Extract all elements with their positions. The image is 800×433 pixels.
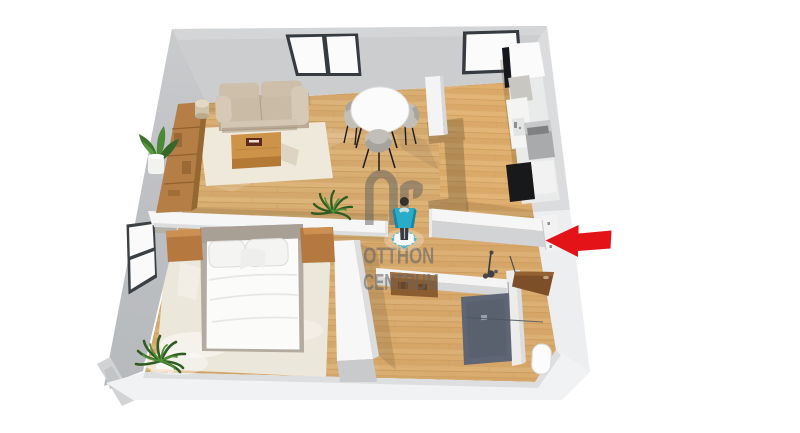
svg-text:CENTRUM: CENTRUM [363, 269, 439, 295]
